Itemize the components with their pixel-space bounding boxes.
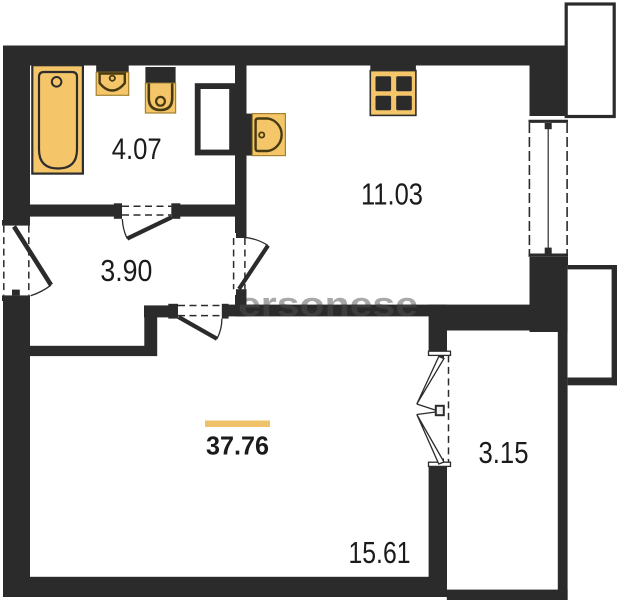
svg-text:37.76: 37.76 <box>206 433 269 461</box>
svg-text:4.07: 4.07 <box>112 133 162 166</box>
svg-text:11.03: 11.03 <box>361 177 423 212</box>
svg-text:15.61: 15.61 <box>349 535 411 570</box>
svg-text:3.15: 3.15 <box>479 435 529 470</box>
svg-text:3.90: 3.90 <box>100 253 152 288</box>
